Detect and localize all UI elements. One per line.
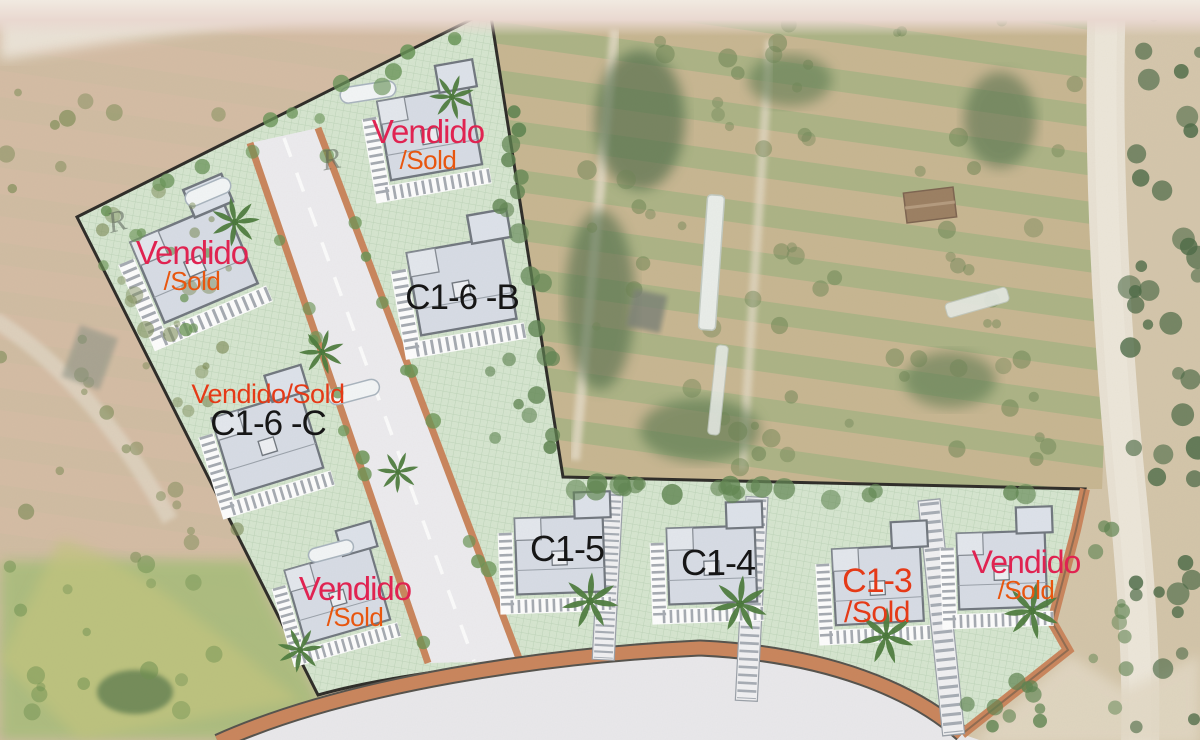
- photo-top-band: [0, 0, 1200, 36]
- plot-name-text: C1-5: [530, 531, 604, 566]
- plot-label-north[interactable]: Vendido /Sold: [372, 116, 484, 174]
- plot-name-text: C1-6 -B: [405, 281, 519, 315]
- plot-name-text: C1-6 -C: [191, 407, 344, 441]
- aerial-site-plan: Vendido /Sold Vendido /Sold C1-6 -B Vend…: [0, 0, 1200, 740]
- plot-status-text: /Sold: [372, 148, 484, 173]
- plot-label-c1-5[interactable]: C1-5: [530, 531, 604, 566]
- plot-label-c1-6-c[interactable]: Vendido/Sold C1-6 -C: [191, 381, 344, 442]
- plot-label-southeast[interactable]: Vendido /Sold: [972, 547, 1081, 604]
- plot-label-northwest[interactable]: Vendido /Sold: [136, 237, 248, 295]
- plot-status-text: /Sold: [299, 605, 411, 630]
- site-plan-canvas: [0, 0, 1200, 740]
- plot-status-text: /Sold: [136, 269, 248, 294]
- plot-label-c1-6-b[interactable]: C1-6 -B: [405, 281, 519, 315]
- plot-name-text: C1-4: [681, 545, 755, 580]
- plot-status-text: Vendido: [372, 116, 484, 148]
- plot-label-c1-4[interactable]: C1-4: [681, 545, 755, 580]
- plot-label-c1-3[interactable]: C1-3 /Sold: [842, 565, 912, 628]
- plot-status-text: Vendido: [136, 237, 248, 269]
- plot-status-text: Vendido: [972, 547, 1081, 578]
- plot-status-text: /Sold: [842, 598, 912, 627]
- plot-status-text: /Sold: [972, 578, 1081, 603]
- plot-label-southwest[interactable]: Vendido /Sold: [299, 573, 411, 631]
- plot-status-text: Vendido: [299, 573, 411, 605]
- photo-grain: [0, 0, 1200, 740]
- plot-name-text: C1-3: [842, 565, 912, 598]
